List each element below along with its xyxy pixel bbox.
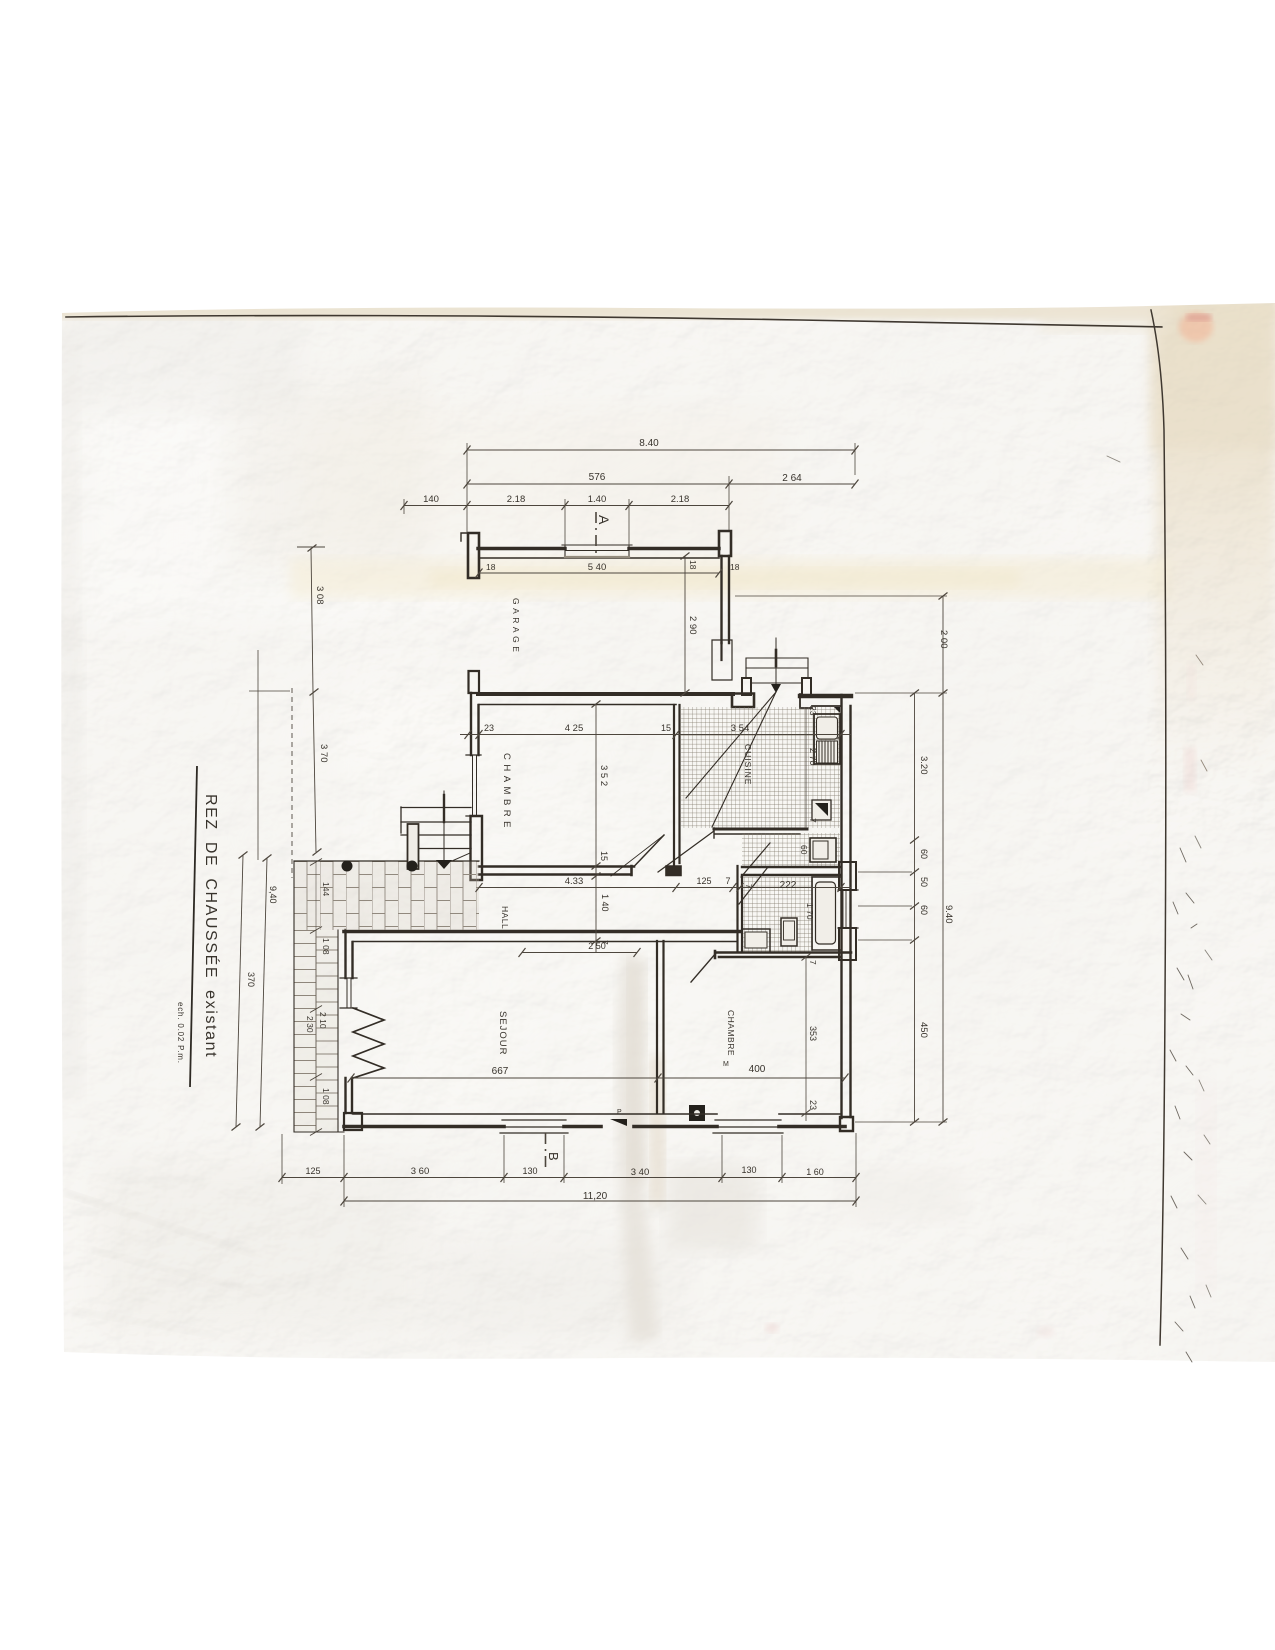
svg-text:3 40: 3 40: [631, 1167, 650, 1178]
svg-text:1 70: 1 70: [805, 903, 815, 920]
svg-text:2 30: 2 30: [305, 1016, 315, 1033]
svg-text:3 70: 3 70: [318, 744, 329, 763]
svg-text:2.18: 2.18: [671, 494, 690, 505]
svg-text:125: 125: [696, 876, 711, 886]
svg-text:125: 125: [305, 1166, 320, 1176]
svg-text:1 60: 1 60: [806, 1167, 824, 1177]
svg-text:60: 60: [919, 905, 929, 915]
svg-text:18: 18: [688, 560, 698, 570]
svg-text:18: 18: [486, 562, 496, 572]
svg-text:CHAMBRE: CHAMBRE: [501, 753, 512, 832]
svg-text:1 08: 1 08: [321, 938, 331, 955]
svg-text:5 40: 5 40: [588, 562, 607, 573]
svg-text:3 54: 3 54: [731, 723, 750, 734]
svg-text:7: 7: [808, 818, 818, 823]
svg-text:667: 667: [492, 1066, 509, 1077]
svg-text:2 90: 2 90: [687, 616, 698, 635]
svg-text:HALL: HALL: [500, 906, 510, 929]
svg-text:144: 144: [321, 882, 331, 896]
svg-text:REZ DE CHAUSSÉE existant: REZ DE CHAUSSÉE existant: [202, 794, 221, 1058]
svg-text:ech. 0.02 P.m.: ech. 0.02 P.m.: [176, 1002, 185, 1064]
svg-text:130: 130: [741, 1165, 756, 1175]
svg-text:SEJOUR: SEJOUR: [497, 1011, 508, 1056]
svg-text:7: 7: [725, 876, 730, 886]
svg-text:18: 18: [730, 562, 740, 572]
svg-text:11,20: 11,20: [583, 1191, 608, 1202]
svg-text:2 10: 2 10: [318, 1012, 328, 1029]
svg-text:400: 400: [749, 1064, 766, 1075]
svg-text:450: 450: [918, 1022, 929, 1038]
svg-text:A: A: [596, 515, 612, 525]
svg-text:23: 23: [808, 1100, 818, 1110]
svg-text:222: 222: [780, 880, 797, 891]
svg-text:4.33: 4.33: [565, 876, 584, 887]
svg-text:3 08: 3 08: [314, 586, 325, 605]
svg-text:3 5 2: 3 5 2: [598, 765, 609, 786]
svg-text:1.40: 1.40: [588, 494, 607, 505]
svg-text:60: 60: [799, 845, 809, 855]
svg-text:B: B: [546, 1152, 561, 1161]
svg-text:8.40: 8.40: [639, 438, 659, 449]
svg-text:9,40: 9,40: [268, 886, 278, 904]
svg-text:576: 576: [589, 472, 606, 483]
svg-text:1 40: 1 40: [600, 894, 610, 912]
svg-text:3 60: 3 60: [411, 1166, 430, 1177]
svg-text:140: 140: [423, 494, 439, 505]
svg-text:CUISINE: CUISINE: [743, 744, 753, 785]
svg-text:7: 7: [744, 884, 753, 889]
svg-text:2 50: 2 50: [588, 941, 606, 951]
svg-text:1 08: 1 08: [321, 1088, 331, 1105]
svg-text:60: 60: [919, 849, 929, 859]
svg-text:23: 23: [484, 723, 494, 733]
svg-text:15: 15: [599, 851, 609, 861]
svg-text:353: 353: [808, 1026, 818, 1041]
svg-text:CHAMBRE: CHAMBRE: [726, 1010, 736, 1056]
svg-text:7: 7: [808, 960, 818, 965]
svg-text:370: 370: [246, 972, 256, 987]
svg-text:2 70: 2 70: [808, 748, 818, 766]
svg-text:2 64: 2 64: [782, 473, 802, 484]
svg-text:50: 50: [919, 877, 929, 887]
svg-text:2 00: 2 00: [938, 630, 949, 649]
svg-text:130: 130: [522, 1166, 537, 1176]
svg-text:GARAGE: GARAGE: [511, 598, 521, 655]
svg-text:2.18: 2.18: [507, 494, 526, 505]
svg-text:P: P: [617, 1109, 622, 1116]
svg-text:9.40: 9.40: [943, 905, 954, 924]
svg-text:M: M: [723, 1061, 729, 1068]
svg-text:15: 15: [661, 723, 671, 733]
svg-text:23: 23: [808, 706, 818, 716]
svg-text:4 25: 4 25: [565, 723, 584, 734]
svg-text:3.20: 3.20: [918, 756, 929, 775]
